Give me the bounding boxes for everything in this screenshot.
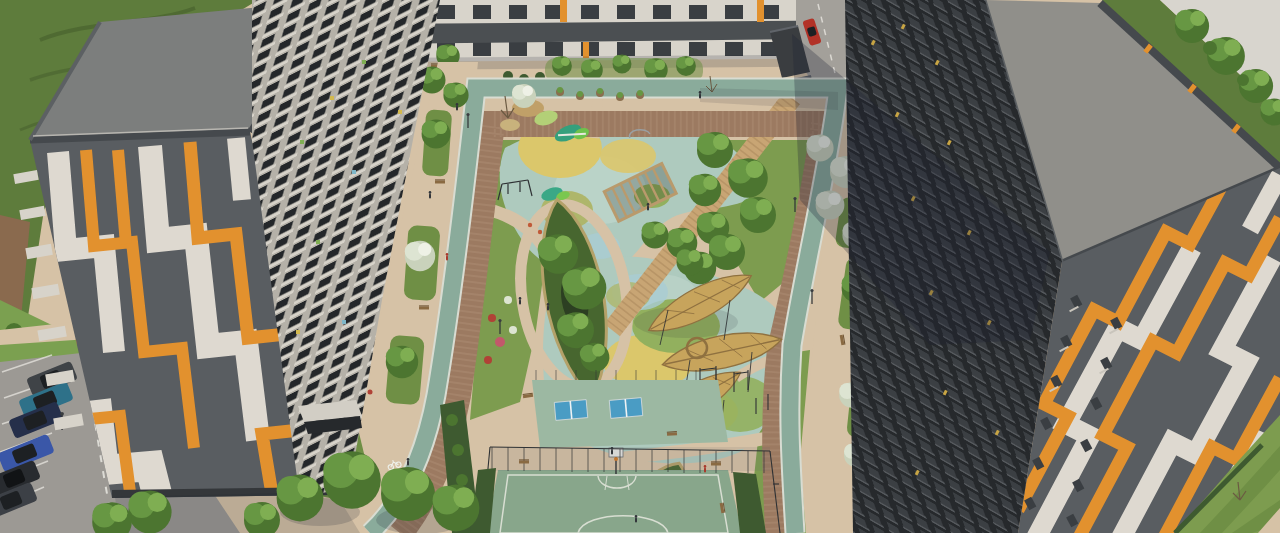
table-tennis-area — [523, 370, 728, 448]
table-tennis-table — [609, 398, 642, 419]
table-tennis-table — [554, 400, 587, 421]
scene-svg — [0, 0, 1280, 533]
courtyard-render — [0, 0, 1280, 533]
